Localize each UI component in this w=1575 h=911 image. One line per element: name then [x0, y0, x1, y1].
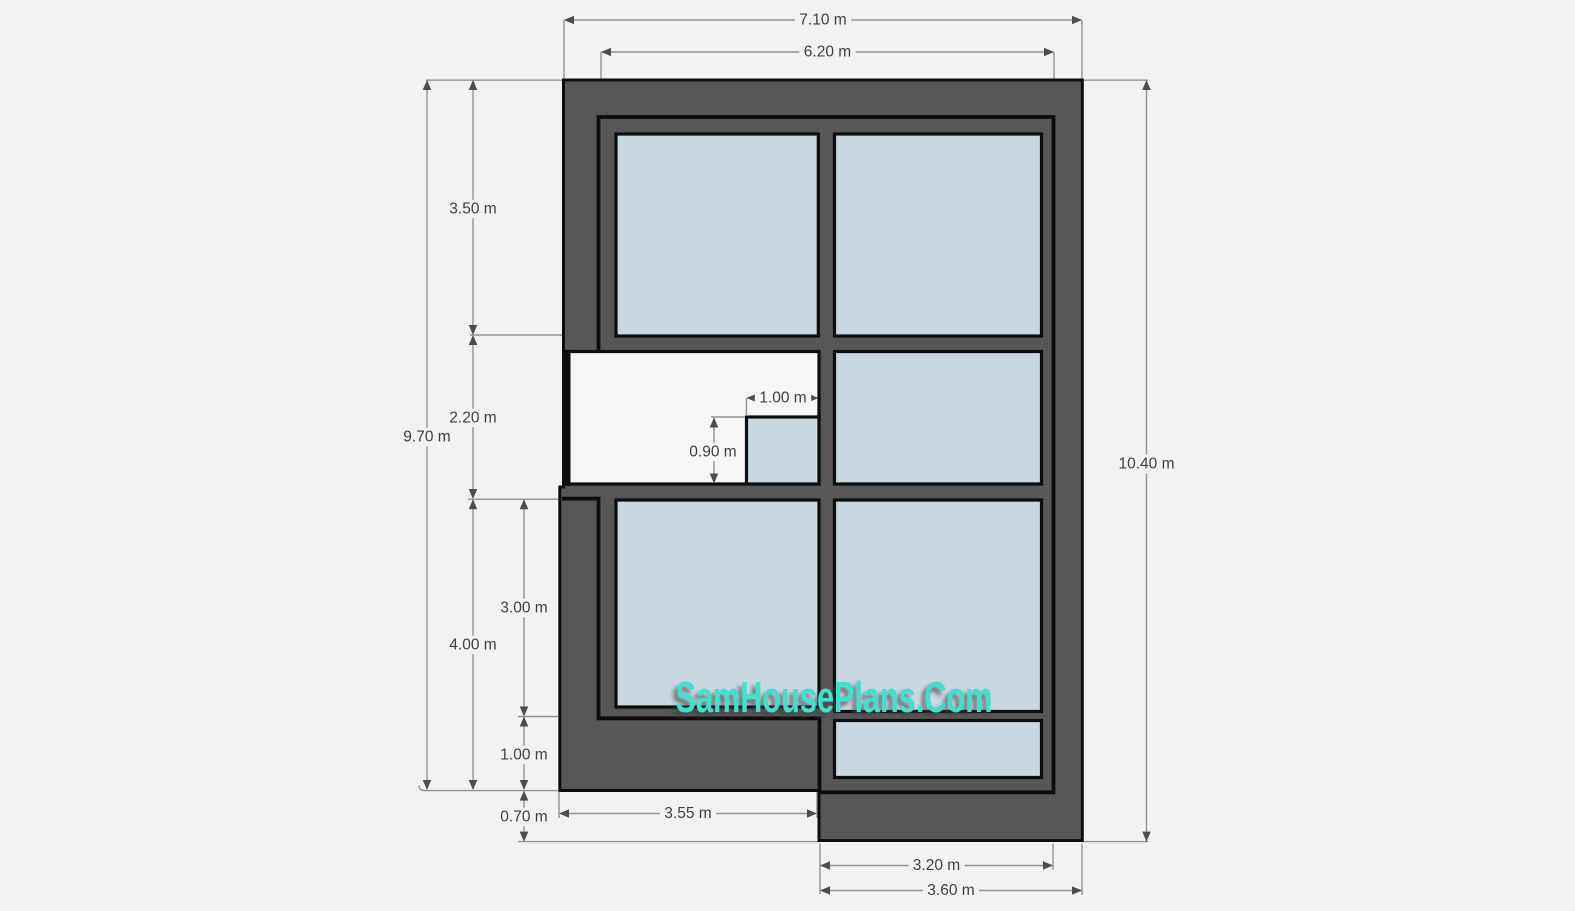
svg-text:2.20 m: 2.20 m — [449, 410, 496, 427]
svg-text:7.10 m: 7.10 m — [799, 12, 846, 29]
svg-text:0.70 m: 0.70 m — [500, 809, 547, 826]
svg-text:3.60 m: 3.60 m — [927, 882, 974, 899]
svg-text:3.50 m: 3.50 m — [449, 201, 496, 218]
svg-text:3.55 m: 3.55 m — [664, 805, 711, 822]
svg-text:9.70 m: 9.70 m — [403, 429, 450, 446]
svg-text:0.90 m: 0.90 m — [689, 444, 736, 461]
svg-text:1.00 m: 1.00 m — [500, 747, 547, 764]
svg-text:1.00 m: 1.00 m — [759, 390, 806, 407]
svg-text:3.00 m: 3.00 m — [500, 600, 547, 617]
svg-text:SamHousePlans.Com: SamHousePlans.Com — [676, 674, 993, 722]
svg-text:4.00 m: 4.00 m — [449, 637, 496, 654]
svg-text:3.20 m: 3.20 m — [913, 857, 960, 874]
svg-text:10.40 m: 10.40 m — [1118, 456, 1174, 473]
svg-text:6.20 m: 6.20 m — [804, 44, 851, 61]
